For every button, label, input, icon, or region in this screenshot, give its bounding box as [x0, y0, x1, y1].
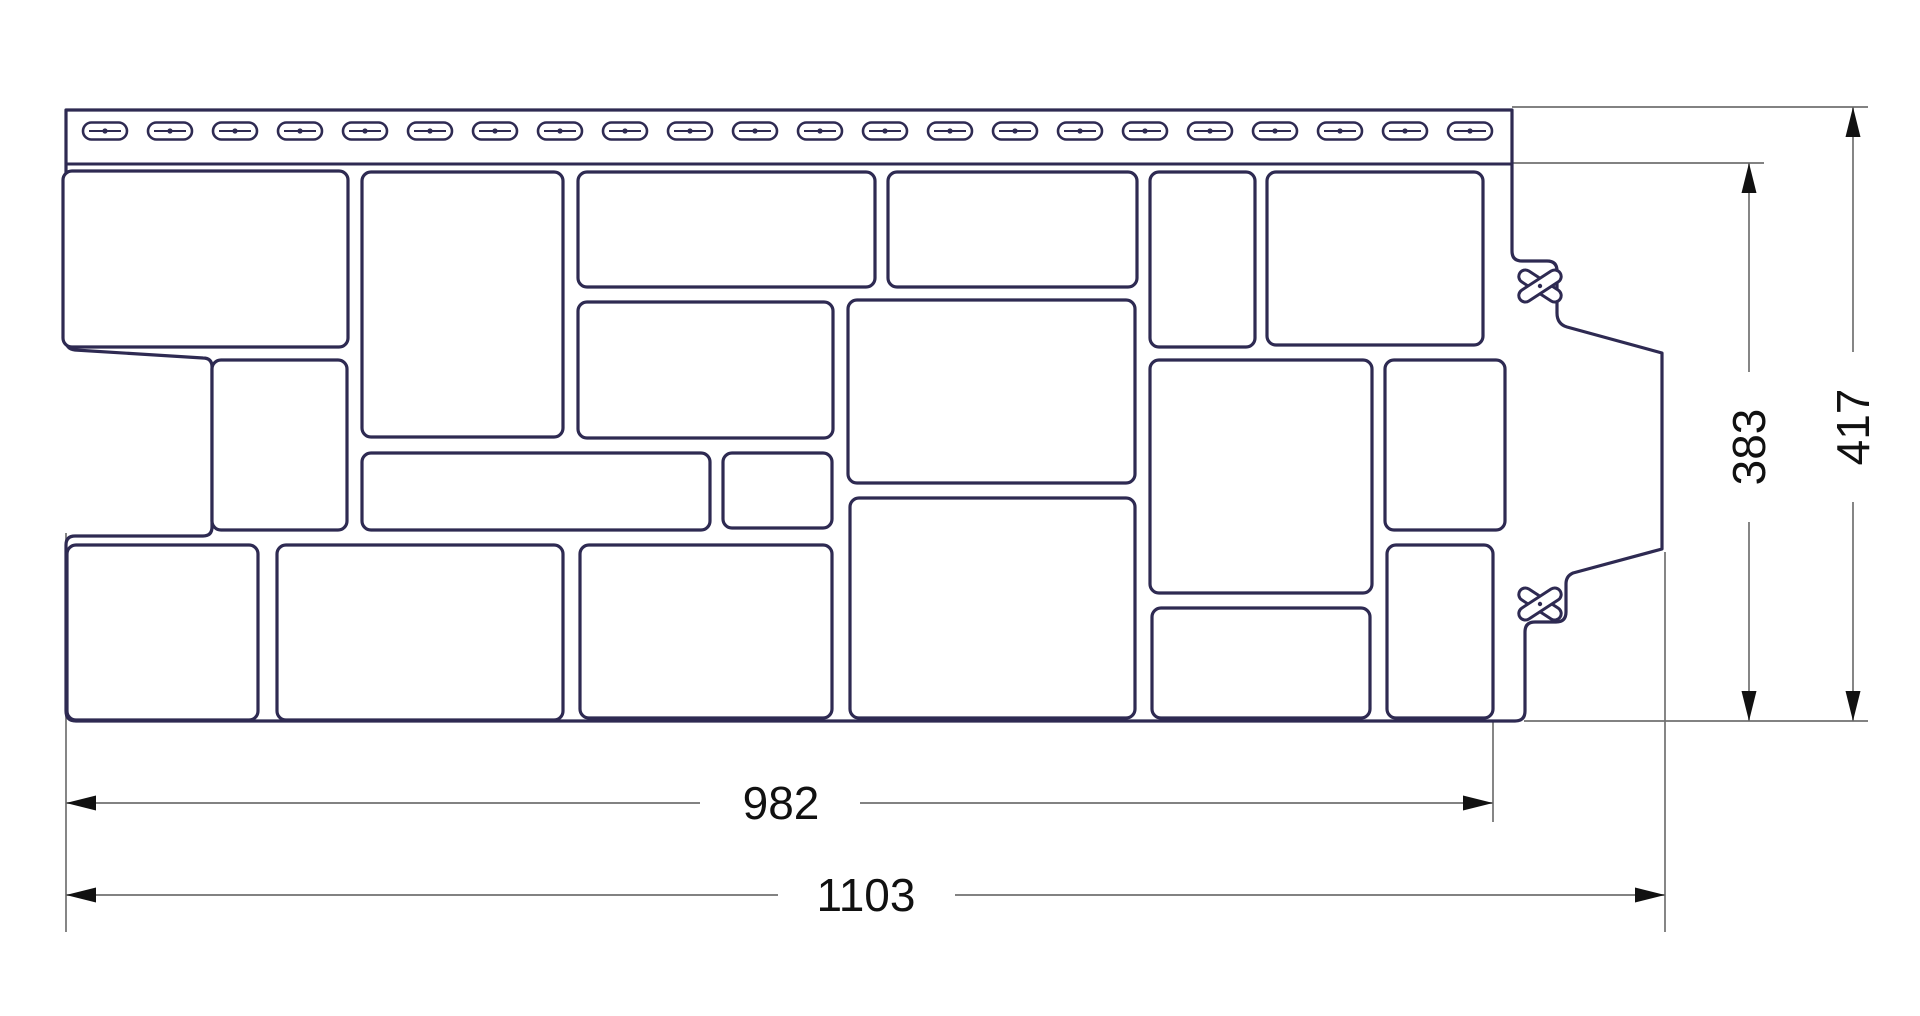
arrowhead-icon	[66, 796, 96, 811]
arrowhead-icon	[1742, 691, 1757, 721]
arrowhead-icon	[66, 888, 96, 903]
dimension-1103: 1103	[66, 869, 1665, 921]
stone-block	[277, 545, 563, 720]
nail-slot-icon	[1318, 123, 1362, 140]
stone-block	[1267, 172, 1483, 345]
nail-slot-icon	[733, 123, 777, 140]
nail-slot-icon	[473, 123, 517, 140]
nail-slot-icon	[343, 123, 387, 140]
stone-block	[63, 171, 348, 347]
stone-block	[578, 302, 833, 438]
arrowhead-icon	[1846, 691, 1861, 721]
drawing-svg: 9821103383417	[0, 0, 1920, 1016]
stone-block	[1152, 608, 1370, 718]
arrowhead-icon	[1742, 163, 1757, 193]
arrowhead-icon	[1463, 796, 1493, 811]
stone-block	[580, 545, 832, 718]
stone-block	[848, 300, 1135, 483]
nail-slot-icon	[1253, 123, 1297, 140]
nail-slot-icon	[1058, 123, 1102, 140]
stone-block	[888, 172, 1137, 287]
stone-block	[212, 360, 347, 530]
nail-slot-icon	[1383, 123, 1427, 140]
stone-block	[578, 172, 875, 287]
stone-block	[362, 453, 710, 530]
dimension-label-height_nominal: 383	[1723, 409, 1775, 486]
nail-slot-icon	[993, 123, 1037, 140]
stone-block	[723, 453, 832, 528]
arrowhead-icon	[1635, 888, 1665, 903]
nail-slot-icon	[1188, 123, 1232, 140]
stone-block	[1385, 360, 1505, 530]
stone-block	[1150, 360, 1372, 593]
dimension-982: 982	[66, 777, 1493, 829]
stone-block	[850, 498, 1135, 718]
nail-slot-icon	[83, 123, 127, 140]
nail-slot-icon	[668, 123, 712, 140]
nail-slot-icon	[538, 123, 582, 140]
nail-slot-icon	[1123, 123, 1167, 140]
nail-slot-icon	[408, 123, 452, 140]
dimension-label-height_overall: 417	[1827, 389, 1879, 466]
nail-slot-icon	[928, 123, 972, 140]
nail-slot-icon	[278, 123, 322, 140]
dimension-417: 417	[1827, 107, 1879, 721]
dimension-label-width_nominal: 982	[743, 777, 820, 829]
nail-slot-icon	[863, 123, 907, 140]
stone-block	[1387, 545, 1493, 718]
panel-technical-drawing: 9821103383417	[0, 0, 1920, 1016]
nail-slot-icon	[1448, 123, 1492, 140]
arrowhead-icon	[1846, 107, 1861, 137]
nail-slot-icon	[798, 123, 842, 140]
nail-slot-icon	[213, 123, 257, 140]
dimension-label-width_overall: 1103	[817, 869, 916, 921]
nail-slot-icon	[603, 123, 647, 140]
stone-block	[67, 545, 258, 720]
dimension-383: 383	[1723, 163, 1775, 721]
stone-block	[362, 172, 563, 437]
stone-block	[1150, 172, 1255, 347]
nail-slot-icon	[148, 123, 192, 140]
